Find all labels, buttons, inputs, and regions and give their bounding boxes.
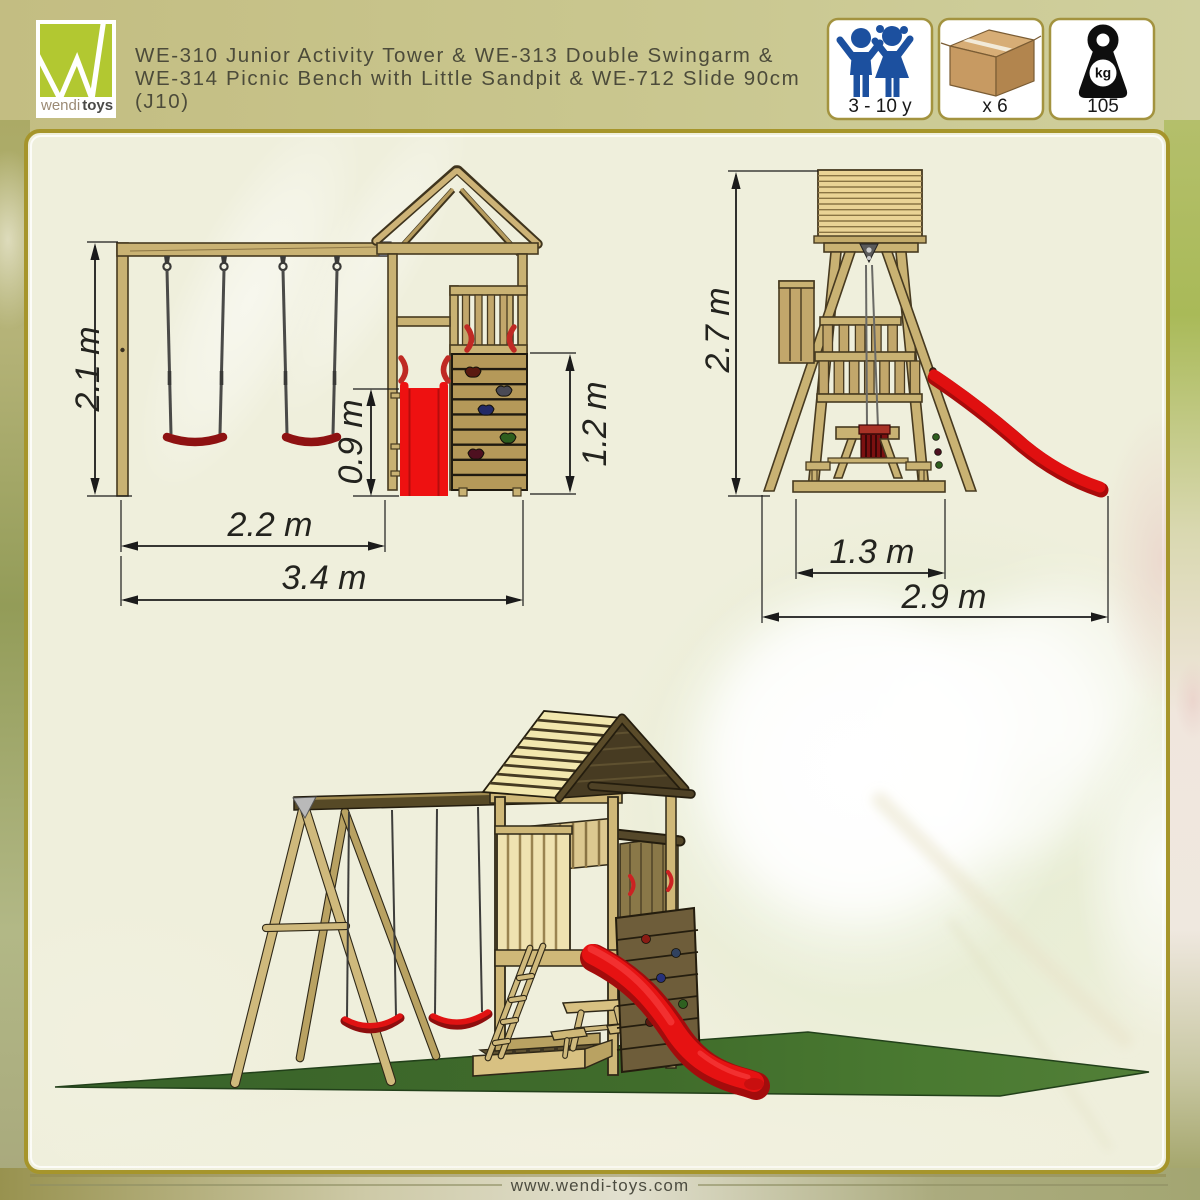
svg-text:2.9 m: 2.9 m [900, 578, 986, 616]
svg-text:WE-314 Picnic Bench with Littl: WE-314 Picnic Bench with Little Sandpit … [135, 67, 800, 90]
svg-text:3.4 m: 3.4 m [281, 559, 366, 597]
svg-text:x 6: x 6 [982, 96, 1007, 117]
svg-text:1.2 m: 1.2 m [576, 381, 614, 466]
svg-text:0.9 m: 0.9 m [332, 399, 370, 484]
svg-text:3 - 10 y: 3 - 10 y [848, 96, 912, 117]
svg-text:wenditoys: wenditoys [40, 97, 113, 114]
svg-text:1.3 m: 1.3 m [829, 533, 914, 571]
svg-text:2.2 m: 2.2 m [226, 506, 312, 544]
svg-text:105: 105 [1087, 96, 1119, 117]
svg-text:kg: kg [1095, 65, 1111, 81]
svg-text:WE-310 Junior Activity Tower &: WE-310 Junior Activity Tower & WE-313 Do… [135, 44, 774, 67]
svg-text:www.wendi-toys.com: www.wendi-toys.com [510, 1176, 690, 1195]
svg-text:2.1 m: 2.1 m [69, 326, 107, 412]
svg-text:(J10): (J10) [135, 90, 190, 113]
svg-text:2.7 m: 2.7 m [699, 287, 737, 373]
